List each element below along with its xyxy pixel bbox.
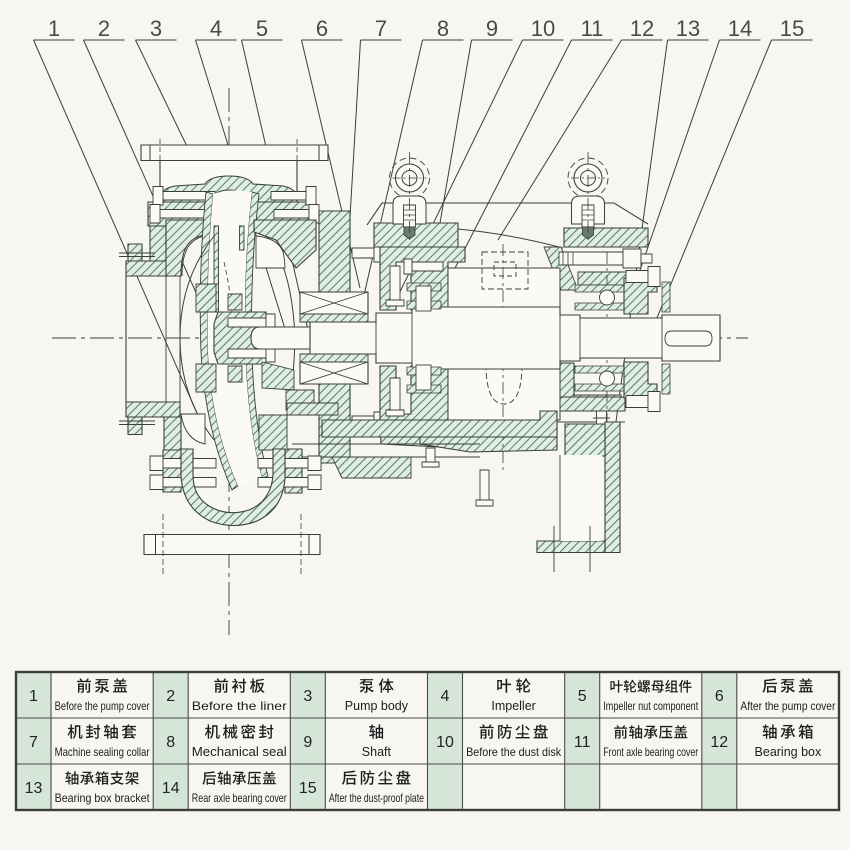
svg-text:Machine sealing collar: Machine sealing collar	[55, 745, 150, 759]
svg-text:12: 12	[630, 16, 654, 41]
svg-text:13: 13	[676, 16, 700, 41]
svg-text:Shaft: Shaft	[362, 745, 392, 759]
svg-text:1: 1	[48, 16, 60, 41]
svg-text:Bearing box: Bearing box	[755, 745, 822, 759]
svg-text:Bearing box bracket: Bearing box bracket	[55, 791, 151, 805]
svg-text:3: 3	[150, 16, 162, 41]
svg-text:10: 10	[436, 734, 454, 751]
svg-text:15: 15	[299, 780, 317, 797]
svg-text:Pump body: Pump body	[345, 699, 409, 713]
svg-text:13: 13	[25, 780, 43, 797]
svg-text:9: 9	[486, 16, 498, 41]
svg-text:2: 2	[166, 688, 175, 705]
svg-text:Rear axle bearing cover: Rear axle bearing cover	[192, 791, 287, 805]
svg-text:Impeller: Impeller	[491, 699, 535, 713]
svg-text:15: 15	[780, 16, 804, 41]
svg-text:6: 6	[316, 16, 328, 41]
svg-text:5: 5	[578, 688, 587, 705]
svg-text:10: 10	[531, 16, 555, 41]
svg-text:8: 8	[437, 16, 449, 41]
svg-text:14: 14	[162, 780, 180, 797]
svg-text:Before the liner: Before the liner	[192, 699, 287, 713]
svg-text:11: 11	[574, 734, 591, 751]
svg-text:12: 12	[710, 734, 728, 751]
svg-text:After the pump cover: After the pump cover	[740, 699, 835, 713]
svg-text:5: 5	[256, 16, 268, 41]
svg-text:14: 14	[728, 16, 752, 41]
svg-text:Before the dust disk: Before the dust disk	[466, 745, 562, 759]
svg-text:2: 2	[98, 16, 110, 41]
svg-text:Before the pump cover: Before the pump cover	[55, 699, 150, 713]
svg-text:6: 6	[715, 688, 724, 705]
svg-text:3: 3	[303, 688, 312, 705]
svg-text:11: 11	[581, 16, 604, 41]
svg-text:7: 7	[375, 16, 387, 41]
svg-text:4: 4	[210, 16, 222, 41]
svg-text:1: 1	[29, 688, 38, 705]
svg-text:After the dust-proof plate: After the dust-proof plate	[329, 791, 424, 805]
svg-text:9: 9	[303, 734, 312, 751]
svg-text:Front axle bearing cover: Front axle bearing cover	[603, 745, 698, 759]
svg-text:7: 7	[29, 734, 38, 751]
svg-text:Mechanical seal: Mechanical seal	[192, 745, 287, 759]
svg-text:4: 4	[441, 688, 450, 705]
svg-text:8: 8	[166, 734, 175, 751]
svg-text:Impeller nut component: Impeller nut component	[603, 699, 699, 713]
